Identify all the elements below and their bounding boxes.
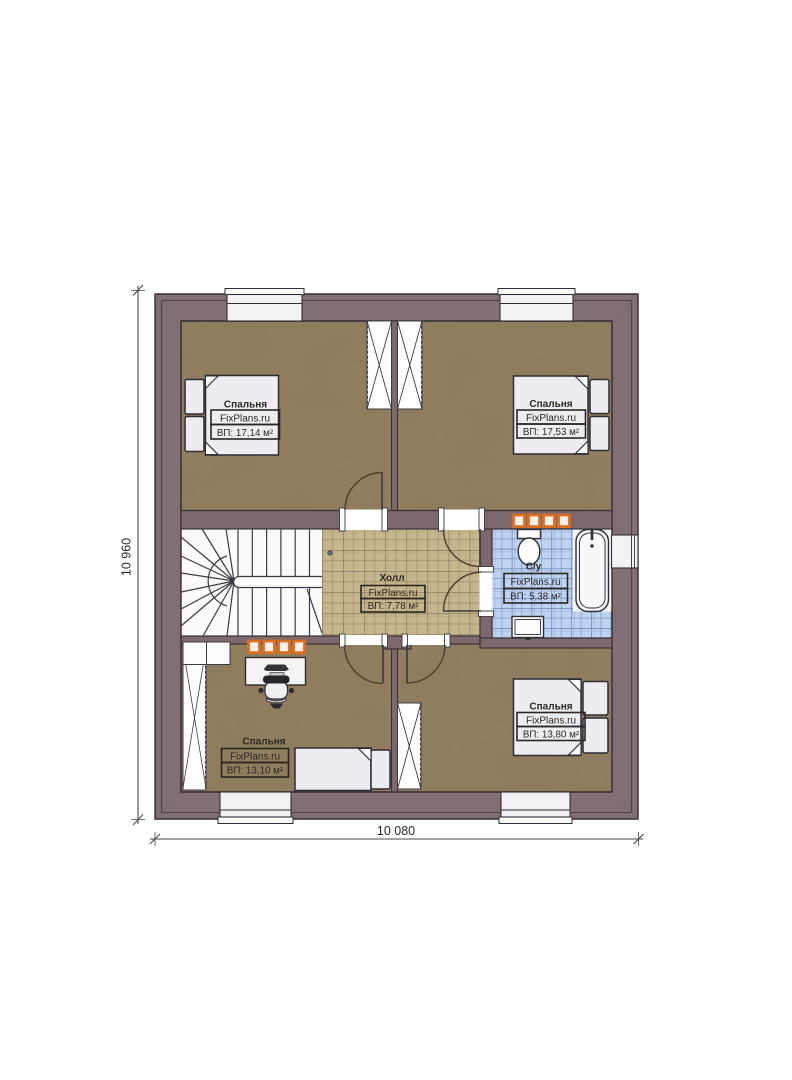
svg-text:FixPlans.ru: FixPlans.ru bbox=[230, 751, 280, 762]
svg-text:ВП: 5,38 м²: ВП: 5,38 м² bbox=[510, 592, 562, 603]
svg-text:FixPlans.ru: FixPlans.ru bbox=[220, 413, 270, 424]
svg-text:ВП: 17,53 м²: ВП: 17,53 м² bbox=[523, 427, 580, 438]
svg-text:С/у: С/у bbox=[526, 562, 542, 573]
svg-text:ВП: 13,10 м²: ВП: 13,10 м² bbox=[227, 766, 284, 777]
svg-text:10 960: 10 960 bbox=[120, 538, 134, 576]
svg-text:ВП: 7,78 м²: ВП: 7,78 м² bbox=[368, 601, 420, 612]
svg-text:10 080: 10 080 bbox=[377, 824, 415, 838]
svg-text:Спальня: Спальня bbox=[529, 399, 572, 410]
svg-text:Спальня: Спальня bbox=[529, 702, 572, 713]
svg-text:Холл: Холл bbox=[379, 573, 404, 584]
svg-text:ВП: 17,14 м²: ВП: 17,14 м² bbox=[217, 428, 274, 439]
svg-text:ВП: 13,80 м²: ВП: 13,80 м² bbox=[523, 729, 580, 740]
svg-text:FixPlans.ru: FixPlans.ru bbox=[526, 413, 576, 424]
svg-text:Спальня: Спальня bbox=[242, 737, 285, 748]
svg-text:FixPlans.ru: FixPlans.ru bbox=[510, 577, 560, 588]
svg-text:Спальня: Спальня bbox=[224, 400, 267, 411]
svg-text:FixPlans.ru: FixPlans.ru bbox=[526, 715, 576, 726]
svg-text:FixPlans.ru: FixPlans.ru bbox=[369, 588, 418, 599]
